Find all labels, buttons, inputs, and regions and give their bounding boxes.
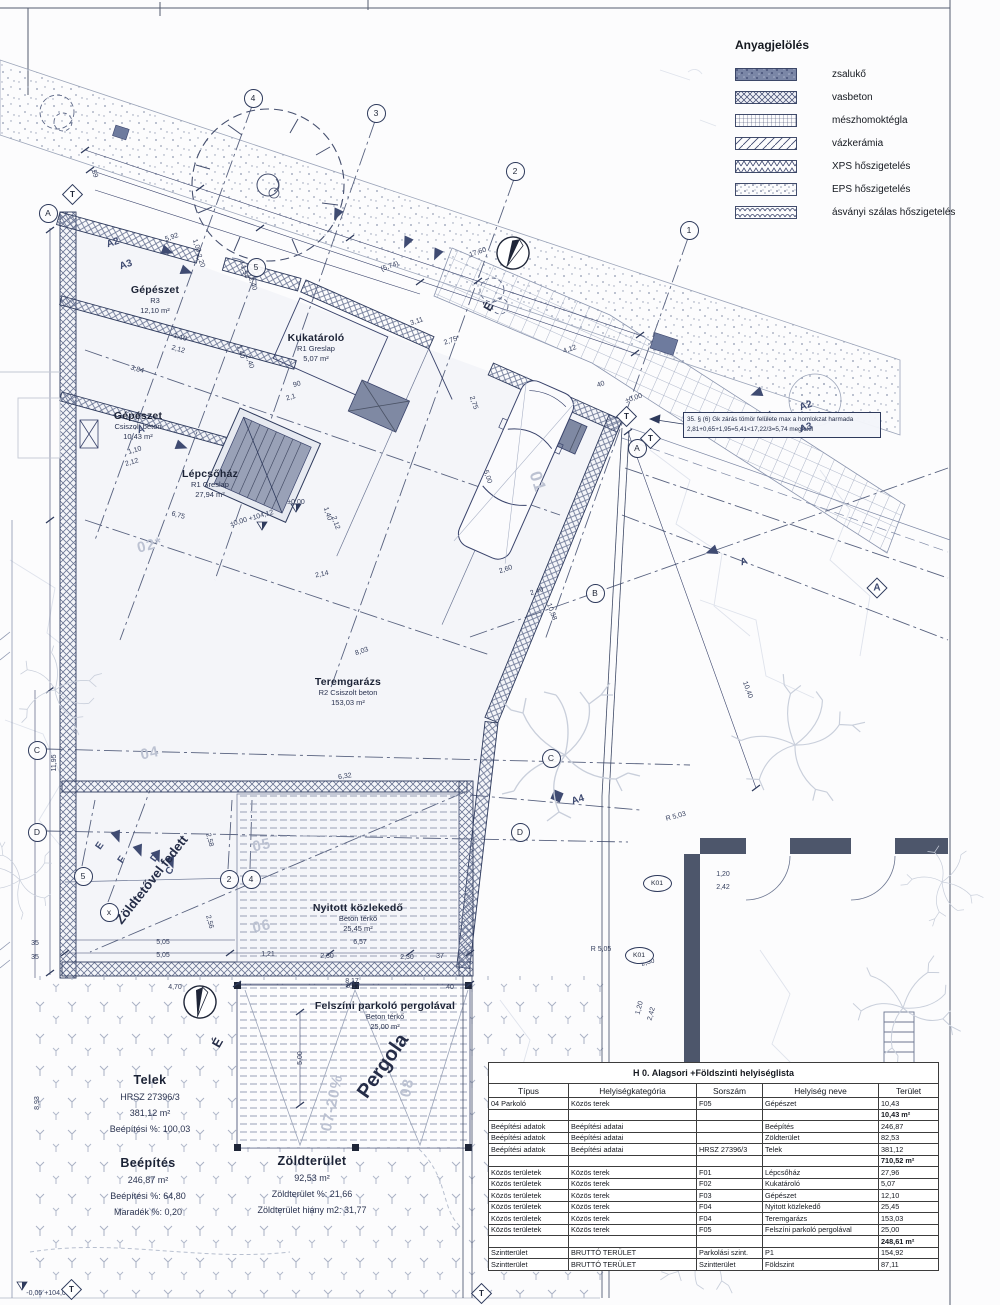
open-walkway-area <box>237 794 459 962</box>
table-cell: 25,00 <box>879 1224 939 1236</box>
keynote-bubble-K01: K01 <box>625 947 654 964</box>
legend-title: Anyagjelölés <box>735 38 997 52</box>
room-detail: R1 Greslap <box>288 344 345 354</box>
grid-bubble-1: 1 <box>680 221 699 240</box>
table-row: Közös területekKözös terekF05Felszíni pa… <box>489 1224 939 1236</box>
legend-item-eps: EPS hőszigetelés <box>735 178 997 201</box>
table-row: Közös területekKözös terekF03Gépészet12,… <box>489 1190 939 1202</box>
grid-bubble-B: B <box>586 584 605 603</box>
entry-marker-label: T <box>66 188 79 201</box>
table-cell: Beépítési adatok <box>489 1121 569 1133</box>
stat-line: Beépítési %: 64,80 <box>110 1189 186 1205</box>
room-label-5: Nyitott közlekedőBeton térkő25,45 m² <box>313 902 403 934</box>
legend-item-label: XPS hőszigetelés <box>832 161 910 172</box>
table-cell: Lépcsőház <box>763 1167 879 1179</box>
note-line-1: 35. § (6) Gk zárás tömör felülete max a … <box>687 415 877 425</box>
table-cell: Közös területek <box>489 1213 569 1225</box>
dimension-text: 40 <box>446 984 454 992</box>
table-cell: Gépészet <box>763 1190 879 1202</box>
dimension-text: 37 <box>436 953 444 961</box>
table-cell: Teremgarázs <box>763 1213 879 1225</box>
dimension-text: 2,42 <box>716 884 730 892</box>
table-cell: Kukatároló <box>763 1178 879 1190</box>
table-cell: Közös területek <box>489 1178 569 1190</box>
table-title: H 0. Alagsori +Földszinti helyiséglista <box>489 1063 939 1084</box>
table-cell <box>697 1132 763 1144</box>
dimension-text: ±0,00 <box>287 499 304 507</box>
grid-bubble-C: C <box>28 741 47 760</box>
table-cell: F05 <box>697 1098 763 1110</box>
table-row: Beépítési adatokBeépítési adataiBeépítés… <box>489 1121 939 1133</box>
room-detail: R1 Greslap <box>182 480 238 490</box>
stat-line: HRSZ 27396/3 <box>110 1090 191 1106</box>
table-row: Közös területekKözös terekF04Nyitott köz… <box>489 1201 939 1213</box>
table-cell: Beépítés <box>763 1121 879 1133</box>
room-label-4: TeremgarázsR2 Csiszolt beton153,03 m² <box>315 676 381 708</box>
table-cell: F05 <box>697 1224 763 1236</box>
legend-item-vasbeton: vasbeton <box>735 86 997 109</box>
meszhomok-swatch-icon <box>735 114 797 127</box>
table-cell: Telek <box>763 1144 879 1156</box>
stat-line: Maradék %: 0,20 <box>110 1204 186 1220</box>
table-cell: BRUTTÓ TERÜLET <box>569 1247 697 1259</box>
table-row: Közös területekKözös terekF01Lépcsőház27… <box>489 1167 939 1179</box>
table-cell <box>763 1155 879 1167</box>
site-plan-sheet: Anyagjelölés zsalukővasbetonmészhomoktég… <box>0 0 1000 1305</box>
table-cell: Közös terek <box>569 1213 697 1225</box>
room-name: Kukatároló <box>288 332 345 344</box>
legend-item-label: mészhomoktégla <box>832 115 908 126</box>
room-detail: 27,94 m² <box>182 490 238 500</box>
room-detail: 153,03 m² <box>315 698 381 708</box>
table-cell: 10,43 <box>879 1098 939 1110</box>
table-cell: Beépítési adatok <box>489 1144 569 1156</box>
zsaluko-swatch-icon <box>735 68 797 81</box>
table-cell: Nyitott közlekedő <box>763 1201 879 1213</box>
room-name: Lépcsőház <box>182 468 238 480</box>
note-line-2: 2,81+0,65+1,95=5,41<17,22/3=5,74 megfele… <box>687 425 877 435</box>
table-cell <box>489 1109 569 1121</box>
room-label-3: LépcsőházR1 Greslap27,94 m² <box>182 468 238 500</box>
grid-bubble-A: A <box>39 204 58 223</box>
column-header: Típus <box>489 1084 569 1098</box>
table-cell: Közös területek <box>489 1224 569 1236</box>
dimension-text: 4,70 <box>168 984 182 992</box>
dimension-text: 5,05 <box>156 952 170 960</box>
grid-bubble-5: 5 <box>74 867 93 886</box>
grid-bubble-D: D <box>28 823 47 842</box>
grid-bubble-x: x <box>100 903 119 922</box>
keynote-bubble-K01: K01 <box>643 875 672 892</box>
table-cell: Közös terek <box>569 1167 697 1179</box>
table-cell: Földszint <box>763 1259 879 1271</box>
legend-item-asvanyi: ásványi szálas hőszigetelés <box>735 201 997 224</box>
stat-line: 246,87 m² <box>110 1173 186 1189</box>
table-cell: 154,92 <box>879 1247 939 1259</box>
grid-bubble-3: 3 <box>367 104 386 123</box>
room-name: Nyitott közlekedő <box>313 902 403 914</box>
table-row: SzintterületBRUTTÓ TERÜLETSzintterületFö… <box>489 1259 939 1271</box>
room-name: Teremgarázs <box>315 676 381 688</box>
table-cell: Zöldterület <box>763 1132 879 1144</box>
table-cell: 87,11 <box>879 1259 939 1271</box>
stat-line: Zöldterület %: 21,66 <box>257 1187 366 1203</box>
room-name: Felszíni parkoló pergolával <box>315 1000 455 1012</box>
asvanyi-swatch-icon <box>735 206 797 219</box>
legend-item-vazkeramia: vázkerámia <box>735 132 997 155</box>
table-cell: 82,53 <box>879 1132 939 1144</box>
room-detail: Beton térkő <box>313 914 403 924</box>
room-detail: 25,00 m² <box>315 1022 455 1032</box>
entry-marker-label: T <box>620 410 633 423</box>
table-cell: Beépítési adatai <box>569 1144 697 1156</box>
table-cell <box>569 1155 697 1167</box>
stat-line: Beépítési %: 100,03 <box>110 1121 191 1137</box>
dimension-text: 1,20 <box>716 871 730 879</box>
dimension-text: 11,95 <box>51 755 59 772</box>
grid-bubble-4: 4 <box>242 870 261 889</box>
dimension-text: 35 <box>31 940 39 948</box>
table-cell: Közös területek <box>489 1201 569 1213</box>
room-name: Gépészet <box>131 284 179 296</box>
table-cell: 246,87 <box>879 1121 939 1133</box>
grid-bubble-D: D <box>511 823 530 842</box>
table-cell: Közös terek <box>569 1201 697 1213</box>
entry-marker-label: T <box>475 1287 488 1300</box>
xps-swatch-icon <box>735 160 797 173</box>
entry-marker-label: T <box>644 432 657 445</box>
table-cell: Szintterület <box>489 1259 569 1271</box>
table-row: 04 ParkolóKözös terekF05Gépészet10,43 <box>489 1098 939 1110</box>
column-header: Helyiség neve <box>763 1084 879 1098</box>
table-row: SzintterületBRUTTÓ TERÜLETParkolási szin… <box>489 1247 939 1259</box>
room-detail: 12,10 m² <box>131 306 179 316</box>
table-cell: Beépítési adatai <box>569 1132 697 1144</box>
room-detail: Beton térkő <box>315 1012 455 1022</box>
table-row: Beépítési adatokBeépítési adataiZöldterü… <box>489 1132 939 1144</box>
dimension-text: 8,17 <box>345 978 359 986</box>
table-cell: F02 <box>697 1178 763 1190</box>
grid-bubble-2: 2 <box>506 162 525 181</box>
room-schedule-table: H 0. Alagsori +Földszinti helyiséglistaT… <box>488 1062 938 1271</box>
entry-marker-label: T <box>65 1283 78 1296</box>
table-cell <box>489 1236 569 1248</box>
legend-item-label: ásványi szálas hőszigetelés <box>832 207 955 218</box>
table-cell: Gépészet <box>763 1098 879 1110</box>
table-cell: Szintterület <box>489 1247 569 1259</box>
room-detail: R3 <box>131 296 179 306</box>
table-cell: 12,10 <box>879 1190 939 1202</box>
stat-title: Beépítés <box>110 1156 186 1170</box>
table-cell: Szintterület <box>697 1259 763 1271</box>
table-cell: Beépítési adatai <box>569 1121 697 1133</box>
table-cell: HRSZ 27396/3 <box>697 1144 763 1156</box>
table-cell: 5,07 <box>879 1178 939 1190</box>
regulation-note: 35. § (6) Gk zárás tömör felülete max a … <box>683 412 881 438</box>
legend-item-label: zsalukő <box>832 69 866 80</box>
legend-item-label: vasbeton <box>832 92 873 103</box>
vasbeton-swatch-icon <box>735 91 797 104</box>
room-detail: 25,45 m² <box>313 924 403 934</box>
dimension-text: 5,05 <box>156 939 170 947</box>
stat-line: 92,53 m² <box>257 1171 366 1187</box>
schedule-table: H 0. Alagsori +Földszinti helyiséglistaT… <box>488 1062 939 1271</box>
table-cell <box>697 1121 763 1133</box>
table-cell: F03 <box>697 1190 763 1202</box>
grid-bubble-C: C <box>542 749 561 768</box>
stat-line: Zöldterület hiány m2: 31,77 <box>257 1202 366 1218</box>
table-cell: Közös terek <box>569 1190 697 1202</box>
table-cell: Beépítési adatok <box>489 1132 569 1144</box>
vazkeramia-swatch-icon <box>735 137 797 150</box>
dimension-text: 35 <box>31 954 39 962</box>
table-cell: 25,45 <box>879 1201 939 1213</box>
stat-title: Zöldterület <box>257 1154 366 1168</box>
eps-swatch-icon <box>735 183 797 196</box>
table-cell: BRUTTÓ TERÜLET <box>569 1259 697 1271</box>
column-header: Sorszám <box>697 1084 763 1098</box>
table-cell <box>697 1236 763 1248</box>
materials-legend: Anyagjelölés zsalukővasbetonmészhomoktég… <box>735 38 997 224</box>
table-cell <box>763 1236 879 1248</box>
table-cell: F04 <box>697 1201 763 1213</box>
grid-bubble-2: 2 <box>220 870 239 889</box>
table-cell: Felszíni parkoló pergolával <box>763 1224 879 1236</box>
dimension-text: R 5,05 <box>591 946 612 954</box>
table-cell: 04 Parkoló <box>489 1098 569 1110</box>
table-row: Közös területekKözös terekF04Teremgarázs… <box>489 1213 939 1225</box>
table-row: 710,52 m² <box>489 1155 939 1167</box>
legend-item-xps: XPS hőszigetelés <box>735 155 997 178</box>
column-header: Helyiségkategória <box>569 1084 697 1098</box>
legend-item-label: EPS hőszigetelés <box>832 184 910 195</box>
table-cell <box>763 1109 879 1121</box>
legend-item-meszhomok: mészhomoktégla <box>735 109 997 132</box>
table-cell: 153,03 <box>879 1213 939 1225</box>
room-label-1: KukatárolóR1 Greslap5,07 m² <box>288 332 345 364</box>
table-cell <box>697 1155 763 1167</box>
table-cell: F01 <box>697 1167 763 1179</box>
table-cell: F04 <box>697 1213 763 1225</box>
stat-line: 381,12 m² <box>110 1106 191 1122</box>
dimension-text: 5,00 <box>297 1051 305 1065</box>
site-stat-2: Zöldterület92,53 m²Zöldterület %: 21,66Z… <box>257 1154 366 1218</box>
section-label: A <box>873 583 880 594</box>
table-cell: Közös terek <box>569 1098 697 1110</box>
table-cell: 710,52 m² <box>879 1155 939 1167</box>
table-row: Közös területekKözös terekF02Kukatároló5… <box>489 1178 939 1190</box>
table-cell: 10,43 m² <box>879 1109 939 1121</box>
table-cell: 381,12 <box>879 1144 939 1156</box>
table-cell: Parkolási szint. <box>697 1247 763 1259</box>
grid-bubble-5: 5 <box>247 258 266 277</box>
grid-bubble-4: 4 <box>244 89 263 108</box>
legend-item-zsaluko: zsalukő <box>735 63 997 86</box>
table-cell: Közös terek <box>569 1178 697 1190</box>
table-cell: 248,61 m² <box>879 1236 939 1248</box>
table-cell: Közös területek <box>489 1167 569 1179</box>
table-row: Beépítési adatokBeépítési adataiHRSZ 273… <box>489 1144 939 1156</box>
room-label-6: Felszíni parkoló pergolávalBeton térkő25… <box>315 1000 455 1032</box>
legend-item-label: vázkerámia <box>832 138 883 149</box>
table-cell: Közös terek <box>569 1224 697 1236</box>
room-label-0: GépészetR312,10 m² <box>131 284 179 316</box>
table-cell <box>569 1109 697 1121</box>
dimension-text: 8,93 <box>34 1096 42 1110</box>
table-cell: 27,96 <box>879 1167 939 1179</box>
table-row: 248,61 m² <box>489 1236 939 1248</box>
dimension-text: 2,30 <box>320 953 334 961</box>
site-stat-1: Beépítés246,87 m²Beépítési %: 64,80Marad… <box>110 1156 186 1220</box>
room-name: Gépészet <box>114 410 162 422</box>
room-detail: R2 Csiszolt beton <box>315 688 381 698</box>
table-cell: P1 <box>763 1247 879 1259</box>
stat-title: Telek <box>110 1073 191 1087</box>
column-header: Terület <box>879 1084 939 1098</box>
table-row: 10,43 m² <box>489 1109 939 1121</box>
room-detail: 5,07 m² <box>288 354 345 364</box>
table-cell: Közös területek <box>489 1190 569 1202</box>
dimension-text: 2,30 <box>400 954 414 962</box>
dimension-text: 6,57 <box>353 939 367 947</box>
table-cell <box>489 1155 569 1167</box>
table-cell <box>569 1236 697 1248</box>
table-cell <box>697 1109 763 1121</box>
site-stat-0: TelekHRSZ 27396/3381,12 m²Beépítési %: 1… <box>110 1073 191 1137</box>
dimension-text: 1,21 <box>261 951 275 959</box>
